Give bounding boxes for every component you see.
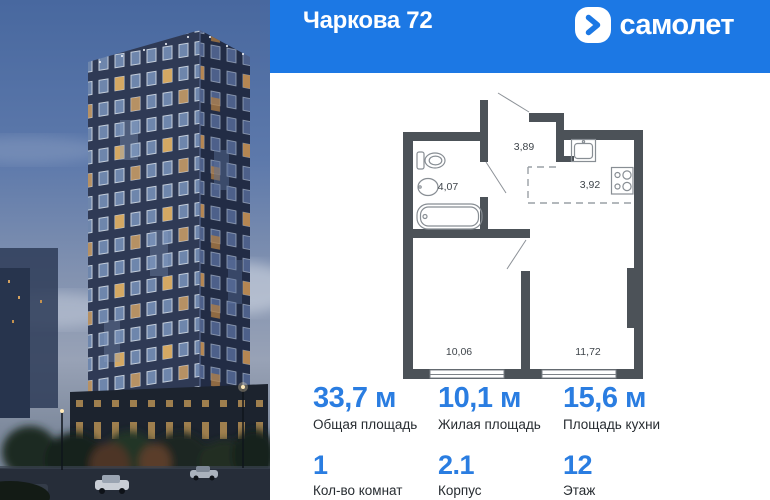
- kitchen-area: 3,92: [580, 179, 601, 191]
- apartment-stats: 33,7 м Общая площадь 10,1 м Жилая площад…: [313, 384, 743, 499]
- living-room-area: 11,72: [575, 346, 601, 358]
- samolet-logo-text: самолет: [620, 7, 734, 43]
- building-photo: [0, 0, 270, 500]
- project-title: Чаркова 72: [303, 7, 432, 35]
- sink-icon: [572, 140, 596, 162]
- bathtub-icon: [417, 204, 482, 229]
- listing-card[interactable]: Чаркова 72 самолет: [0, 0, 770, 500]
- samolet-logo-icon: [575, 7, 611, 43]
- hallway-area: 3,89: [514, 141, 535, 153]
- floor-plan: 4,07 3,89 3,92 10,06 11,72: [398, 90, 650, 388]
- stat-floor: 12 Этаж: [563, 452, 688, 499]
- toilet-icon: [417, 152, 445, 169]
- header: Чаркова 72 самолет: [270, 0, 770, 73]
- stats-row-areas: 33,7 м Общая площадь 10,1 м Жилая площад…: [313, 384, 743, 433]
- plan-doors: [486, 93, 529, 269]
- washbasin-icon: [418, 179, 438, 196]
- bathroom-area: 4,07: [438, 181, 459, 193]
- stat-building: 2.1 Корпус: [438, 452, 563, 499]
- stat-total-area: 33,7 м Общая площадь: [313, 384, 438, 433]
- samolet-logo[interactable]: самолет: [575, 7, 734, 43]
- stat-living-area: 10,1 м Жилая площадь: [438, 384, 563, 433]
- bedroom-area: 10,06: [446, 346, 472, 358]
- stat-kitchen-area: 15,6 м Площадь кухни: [563, 384, 688, 433]
- content-panel: Чаркова 72 самолет: [270, 0, 770, 500]
- stats-row-details: 1 Кол-во комнат 2.1 Корпус 12 Этаж: [313, 452, 743, 499]
- stat-rooms-count: 1 Кол-во комнат: [313, 452, 438, 499]
- stove-icon: [612, 168, 634, 195]
